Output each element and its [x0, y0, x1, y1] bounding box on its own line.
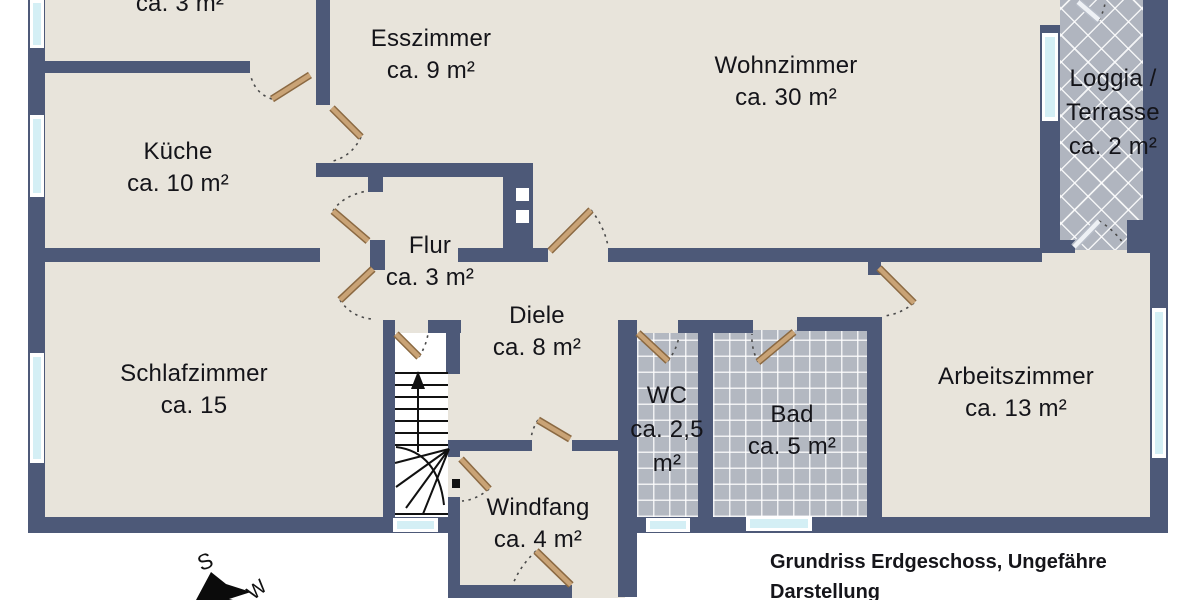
shaft-box-1	[516, 188, 529, 201]
room-label-schlafzimmer: Schlafzimmer ca. 15	[94, 358, 294, 422]
wall-loggia-bottom-corner	[1127, 220, 1168, 253]
window-kueche-left	[30, 115, 44, 197]
window-storage-left	[30, 0, 44, 48]
wall-windfang-bottom	[448, 585, 572, 598]
wall-loggia-bottom	[1060, 240, 1075, 253]
room-area: ca. 3 m²	[330, 262, 530, 294]
room-label-storage: ca. 3 m²	[80, 0, 280, 20]
wall-kueche-esszimmer	[316, 0, 330, 105]
room-name: Wohnzimmer	[686, 50, 886, 82]
room-area: ca. 9 m²	[331, 55, 531, 87]
wall-wc-top	[678, 320, 753, 333]
room-name-2: Terrasse	[1013, 96, 1200, 130]
wall-storage-bottom	[28, 61, 250, 73]
compass-west-label: W	[243, 576, 272, 600]
room-area: ca. 8 m²	[437, 332, 637, 364]
caption-line-2: Darstellung	[770, 577, 1200, 600]
room-area: ca. 15	[94, 390, 294, 422]
room-label-flur: Flur ca. 3 m²	[330, 230, 530, 294]
window-bad-bottom	[746, 516, 812, 531]
wall-outer-bottom-right	[625, 517, 1168, 533]
wall-arbeitszimmer-door-jamb	[868, 262, 881, 275]
window-stairwell-bottom	[393, 518, 438, 532]
plan-caption: Grundriss Erdgeschoss, Ungefähre Darstel…	[770, 547, 1200, 600]
room-area: ca. 5 m²	[692, 431, 892, 463]
wall-flur-top	[316, 163, 503, 177]
room-label-diele: Diele ca. 8 m²	[437, 300, 637, 364]
room-label-wohnzimmer: Wohnzimmer ca. 30 m²	[686, 50, 886, 114]
wall-flur-jamb	[368, 177, 383, 192]
room-name: Windfang	[438, 492, 638, 524]
room-label-bad: Bad ca. 5 m²	[692, 399, 892, 463]
room-label-windfang: Windfang ca. 4 m²	[438, 492, 638, 556]
wall-kueche-schlafzimmer	[28, 248, 320, 262]
room-label-arbeitszimmer: Arbeitszimmer ca. 13 m²	[916, 361, 1116, 425]
room-name: Bad	[692, 399, 892, 431]
room-label-loggia: Loggia / Terrasse ca. 2 m²	[1013, 62, 1200, 164]
room-name: Flur	[330, 230, 530, 262]
caption-line-1: Grundriss Erdgeschoss, Ungefähre	[770, 547, 1200, 577]
room-area: ca. 3 m²	[80, 0, 280, 20]
room-area: ca. 13 m²	[916, 393, 1116, 425]
wall-stairwell-left	[383, 320, 395, 517]
room-area: ca. 2 m²	[1013, 130, 1200, 164]
compass-south-label: S	[194, 547, 217, 577]
window-wc-bottom	[646, 518, 690, 532]
room-name: Loggia /	[1013, 62, 1200, 96]
room-name: Arbeitszimmer	[916, 361, 1116, 393]
room-area: ca. 30 m²	[686, 82, 886, 114]
room-name: Esszimmer	[331, 23, 531, 55]
window-schlafzimmer-left	[30, 353, 44, 463]
wall-windfang-left-upper	[448, 440, 460, 457]
wall-outer-bottom-left	[28, 517, 448, 533]
wall-windfang-top-left	[448, 440, 532, 451]
shaft-box-2	[516, 210, 529, 223]
floorplan: ca. 3 m² Esszimmer ca. 9 m² Küche ca. 10…	[0, 0, 1200, 600]
wall-wohnzimmer-bottom	[608, 248, 1042, 262]
room-name: Küche	[78, 136, 278, 168]
room-label-kueche: Küche ca. 10 m²	[78, 136, 278, 200]
room-name: Schlafzimmer	[94, 358, 294, 390]
room-area: ca. 10 m²	[78, 168, 278, 200]
room-label-esszimmer: Esszimmer ca. 9 m²	[331, 23, 531, 87]
room-area: ca. 4 m²	[438, 524, 638, 556]
room-name: Diele	[437, 300, 637, 332]
window-arbeitszimmer-right	[1152, 308, 1166, 458]
